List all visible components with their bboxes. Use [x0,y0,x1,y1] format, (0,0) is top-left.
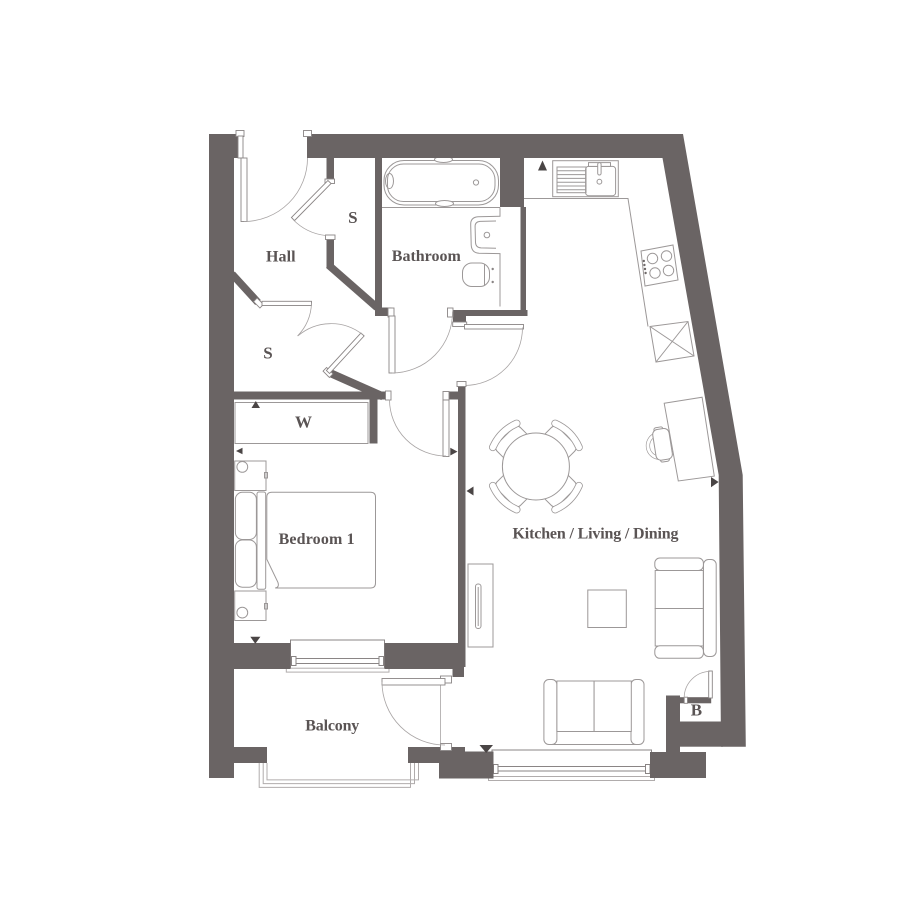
svg-text:S: S [348,208,357,227]
svg-text:Balcony: Balcony [305,717,359,734]
svg-text:W: W [295,413,312,432]
svg-text:Kitchen / Living / Dining: Kitchen / Living / Dining [513,525,679,542]
svg-text:B: B [691,701,702,720]
svg-text:Hall: Hall [266,249,296,266]
svg-text:Bedroom 1: Bedroom 1 [279,531,355,548]
svg-text:S: S [263,344,272,363]
svg-text:Bathroom: Bathroom [392,248,462,265]
